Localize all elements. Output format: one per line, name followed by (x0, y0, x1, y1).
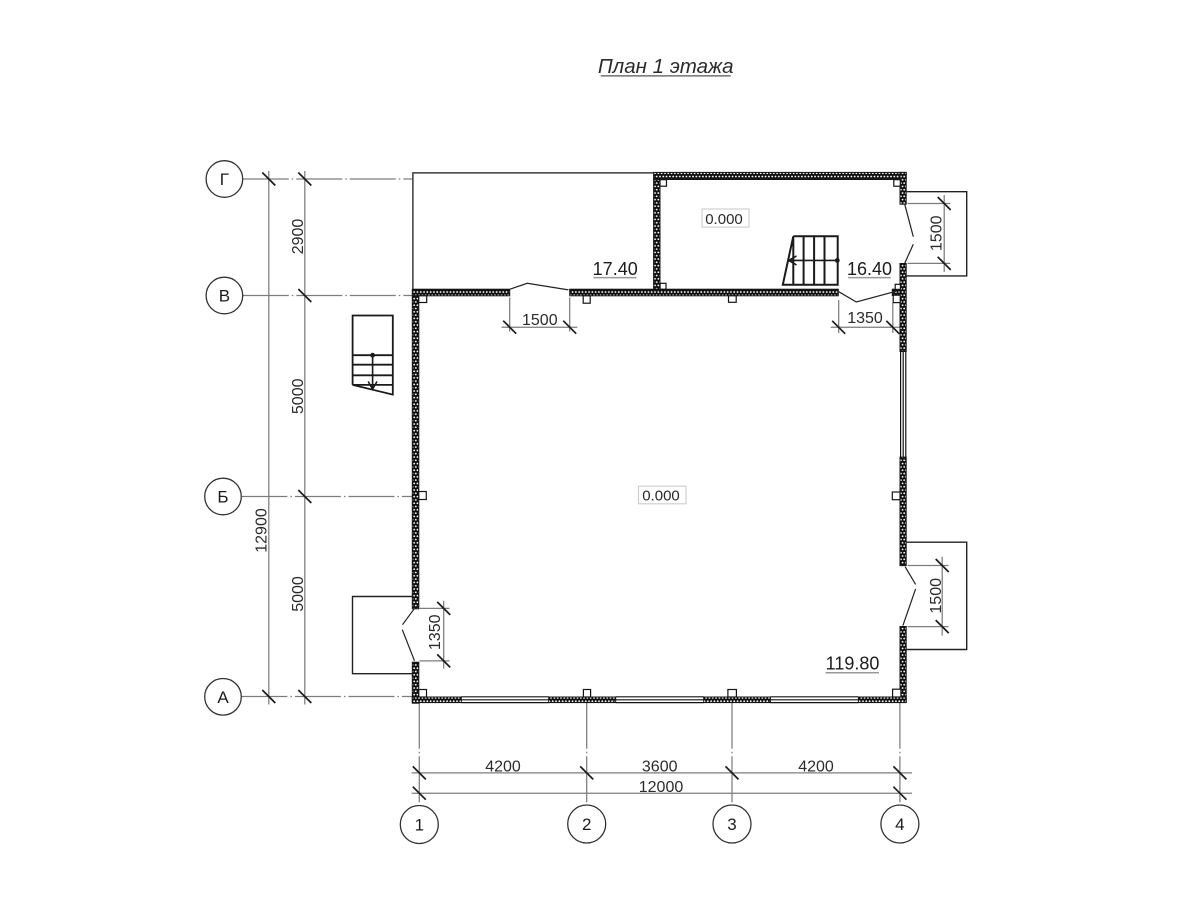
svg-text:12000: 12000 (639, 779, 684, 796)
svg-text:119.80: 119.80 (826, 653, 880, 673)
svg-text:План 1 этажа: План 1 этажа (598, 55, 734, 78)
svg-text:1500: 1500 (928, 578, 945, 614)
svg-text:16.40: 16.40 (847, 259, 892, 279)
svg-text:В: В (219, 287, 230, 306)
svg-text:5000: 5000 (290, 378, 307, 414)
svg-text:4200: 4200 (485, 758, 521, 775)
svg-text:4: 4 (895, 815, 904, 834)
svg-text:0.000: 0.000 (705, 211, 743, 228)
svg-text:1500: 1500 (928, 215, 945, 251)
svg-text:1350: 1350 (847, 310, 883, 327)
svg-text:2900: 2900 (290, 219, 307, 255)
svg-text:2: 2 (582, 815, 591, 834)
svg-text:12900: 12900 (253, 508, 270, 553)
svg-text:А: А (217, 688, 229, 707)
svg-text:5000: 5000 (290, 576, 307, 612)
svg-text:Б: Б (217, 488, 228, 507)
svg-text:4200: 4200 (798, 758, 834, 775)
svg-text:3600: 3600 (642, 758, 678, 775)
svg-text:1500: 1500 (522, 312, 558, 329)
svg-text:1: 1 (415, 816, 424, 835)
svg-text:0.000: 0.000 (642, 488, 680, 505)
svg-text:Г: Г (220, 170, 229, 189)
svg-text:3: 3 (727, 815, 736, 834)
svg-text:1350: 1350 (427, 614, 444, 650)
svg-text:17.40: 17.40 (593, 259, 638, 279)
